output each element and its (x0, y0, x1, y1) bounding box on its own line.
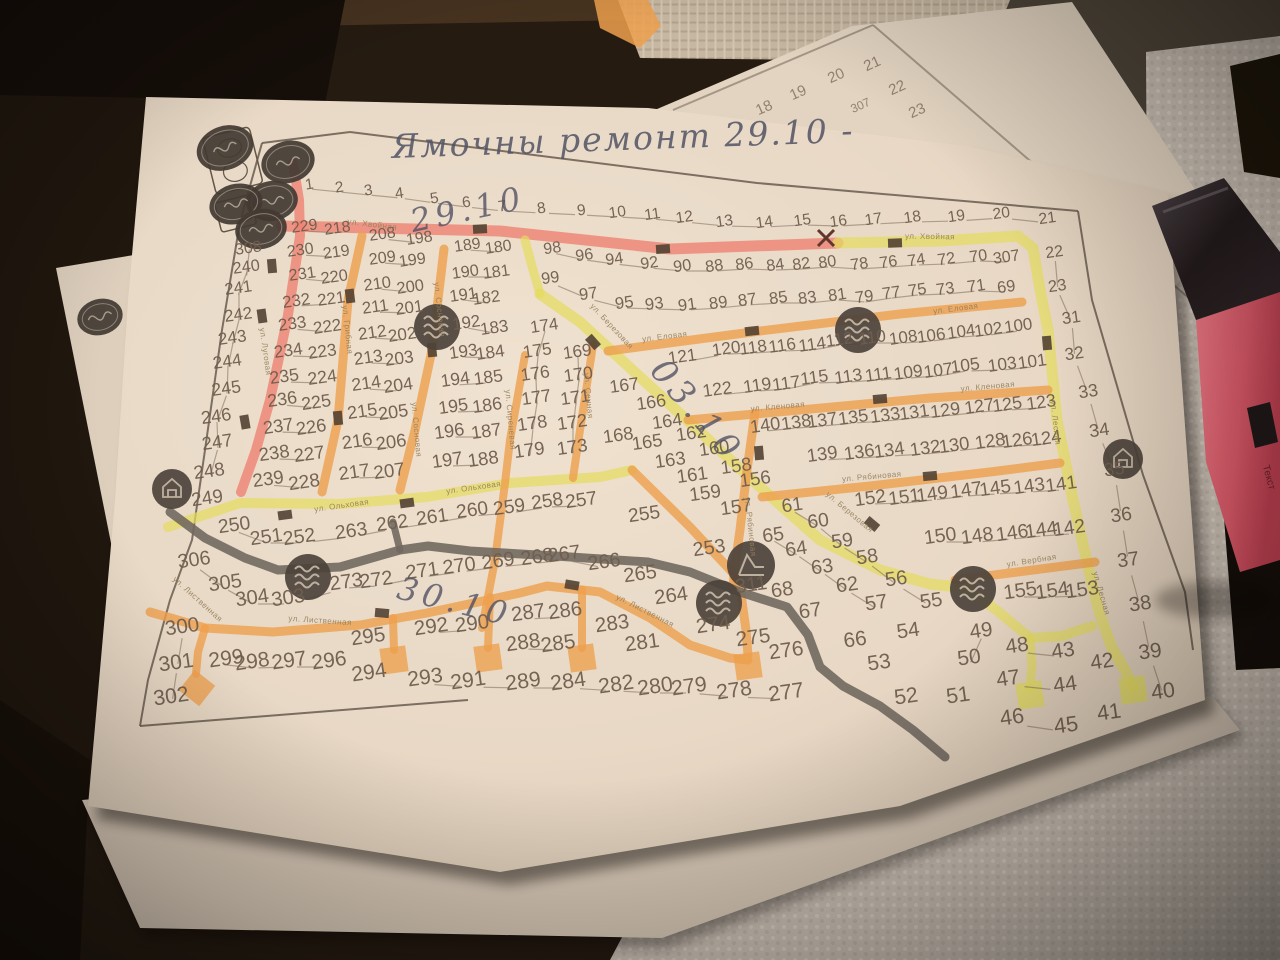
plot-number: 91 (677, 294, 698, 315)
plot-number: 279 (670, 672, 709, 701)
plot-number: 125 (991, 392, 1023, 416)
plot-number: 202 (387, 323, 418, 346)
plot-number: 237 (262, 414, 295, 438)
plot-number: 81 (827, 284, 848, 305)
plot-number: 252 (282, 524, 317, 550)
plot-number: 62 (835, 573, 860, 598)
plot-number: 287 (510, 600, 547, 627)
plot-number: 236 (266, 387, 298, 411)
plot-number: 105 (949, 353, 981, 377)
plot-number: 149 (915, 482, 949, 507)
plot-number: 184 (474, 340, 506, 364)
plot-number: 183 (479, 316, 510, 339)
plot-number: 197 (430, 447, 464, 472)
parcel-boundary-tick (732, 226, 758, 227)
plot-number: 228 (287, 470, 321, 495)
plot-number: 82 (791, 254, 811, 274)
plot-number: 289 (504, 667, 543, 696)
plot-number: 274 (694, 611, 731, 639)
plot-number: 115 (799, 365, 830, 389)
plot-number: 185 (472, 365, 504, 389)
plot-number: 95 (614, 292, 635, 313)
plot-number: 245 (210, 376, 242, 400)
plot-number: 277 (767, 678, 806, 707)
plot-number: 269 (480, 548, 516, 574)
plot-number: 84 (765, 255, 785, 275)
plot-number: 135 (837, 405, 870, 429)
plot-number: 11 (643, 205, 661, 224)
plot-number: 89 (708, 292, 729, 313)
plot-number: 83 (797, 287, 818, 308)
plot-number: 306 (176, 547, 212, 573)
plot-number: 173 (555, 434, 588, 459)
plot-number: 253 (691, 535, 727, 561)
plot-number: 152 (853, 486, 887, 511)
plot-number: 270 (441, 553, 477, 579)
plot-number: 275 (734, 624, 771, 652)
plot-number: 209 (368, 247, 397, 269)
repair-mark (1042, 336, 1052, 351)
plot-number: 243 (217, 326, 248, 349)
plot-number: 19 (947, 207, 967, 226)
plot-number: 242 (223, 303, 253, 326)
plot-number: 34 (1088, 419, 1111, 442)
plot-number: 203 (383, 346, 415, 370)
plot-number: 225 (300, 390, 332, 414)
plot-number: 88 (704, 256, 724, 276)
repair-mark (375, 608, 390, 618)
marker-shadow (1155, 582, 1275, 618)
plot-number: 15 (793, 211, 813, 230)
plot-number: 255 (627, 502, 662, 527)
plot-number: 175 (521, 338, 552, 362)
repair-mark (656, 244, 671, 254)
plot-number: 92 (639, 253, 659, 273)
plot-number: 106 (916, 324, 947, 347)
plot-number: 16 (829, 212, 849, 231)
plot-number: 226 (295, 415, 328, 439)
plot-number: 45 (1052, 711, 1079, 739)
street-highlight-orange (393, 618, 394, 650)
plot-number: 294 (350, 659, 388, 687)
house-icon-circle (152, 469, 192, 509)
plot-number: 188 (466, 446, 500, 471)
plot-number: 286 (547, 598, 584, 625)
plot-number: 99 (540, 268, 561, 288)
plot-number: 231 (288, 263, 317, 285)
plot-number: 301 (157, 649, 195, 677)
plot-number: 303 (270, 585, 306, 611)
plot-number: 238 (257, 440, 290, 465)
plot-number: 110 (857, 326, 887, 349)
plot-number: 205 (377, 400, 410, 424)
plot-number: 230 (286, 239, 315, 261)
street-label: ул. Хвойная (905, 232, 955, 242)
plot-number: 258 (530, 489, 564, 514)
plot-number: 52 (893, 683, 920, 710)
plot-number: 187 (470, 419, 503, 443)
plot-number: 265 (622, 561, 658, 587)
plot-number: 257 (564, 488, 598, 513)
plot-number: 90 (672, 256, 692, 276)
plot-number: 80 (817, 252, 837, 272)
plot-number: 54 (895, 618, 921, 644)
plot-number: 214 (350, 371, 382, 395)
plot-number: 31 (1061, 307, 1082, 328)
repair-mark (345, 289, 356, 304)
plot-number: 232 (281, 289, 311, 312)
plot-number: 216 (340, 428, 373, 453)
plot-number: 65 (761, 523, 786, 548)
plot-number: 13 (715, 212, 735, 231)
plot-number: 86 (734, 254, 754, 274)
plot-number: 276 (767, 637, 805, 665)
plot-number: 248 (192, 458, 226, 483)
plot-number: 132 (908, 435, 941, 460)
plot-number: 73 (935, 279, 956, 299)
plot-number: 61 (780, 494, 804, 518)
plot-number: 182 (471, 286, 501, 309)
plot-number: 101 (1016, 349, 1048, 373)
plot-number: 50 (956, 645, 982, 671)
plot-number: 67 (797, 599, 823, 624)
repair-mark (745, 326, 760, 336)
plot-number: 69 (996, 277, 1017, 297)
plot-number: 66 (842, 627, 868, 653)
plot-number: 35 (1102, 457, 1126, 481)
plot-number: 22 (1044, 242, 1064, 262)
plot-number: 100 (1003, 314, 1034, 337)
plot-number: 285 (539, 630, 577, 658)
plot-number: 150 (923, 523, 958, 549)
plot-number: 39 (1137, 639, 1163, 665)
plot-number: 223 (306, 339, 337, 363)
plot-number: 196 (433, 419, 466, 443)
plot-number: 133 (869, 403, 902, 427)
plot-number: 53 (866, 650, 892, 676)
plot-number: 211 (361, 295, 390, 318)
plot-number: 111 (864, 362, 893, 386)
plot-number: 272 (358, 567, 394, 593)
plot-number: 200 (395, 276, 425, 298)
plot-number: 112 (824, 328, 854, 351)
plot-number: 72 (936, 249, 956, 269)
plot-number: 264 (653, 583, 689, 609)
plot-number: 261 (415, 505, 450, 530)
plot-number: 169 (561, 339, 592, 363)
plot-number: 87 (737, 289, 758, 310)
plot-number: 63 (810, 555, 835, 580)
plot-number: 298 (233, 648, 271, 676)
plot-number: 278 (715, 676, 754, 705)
plot-number: 141 (1044, 472, 1078, 497)
plot-number: 181 (482, 261, 511, 283)
plot-number: 194 (439, 367, 471, 391)
repair-mark (888, 238, 902, 247)
plot-number: 68 (770, 578, 795, 603)
plot-number: 284 (549, 667, 588, 696)
plot-number: 295 (349, 623, 386, 651)
plot-number: 78 (849, 254, 869, 274)
plot-number: 93 (644, 293, 665, 314)
plot-number: 40 (1150, 678, 1177, 705)
plot-number: 148 (960, 523, 995, 549)
plot-number: 33 (1077, 380, 1099, 403)
plot-number: 212 (357, 321, 388, 344)
plot-number: 131 (898, 400, 931, 424)
plot-number: 207 (372, 458, 406, 483)
plot-number: 249 (190, 486, 224, 511)
plot-number: 267 (546, 541, 582, 567)
plot-number: 119 (742, 373, 773, 397)
water-icon-circle (950, 566, 996, 612)
plot-number: 136 (842, 439, 875, 464)
plot-number: 118 (738, 335, 768, 359)
plot-number: 44 (1052, 671, 1079, 698)
plot-number: 234 (272, 338, 304, 362)
parcel-boundary-tick (922, 221, 948, 222)
plot-number: 137 (806, 408, 839, 432)
plot-number: 262 (375, 511, 410, 536)
plot-number: 244 (211, 349, 243, 373)
plot-number: 32 (1063, 342, 1085, 364)
plot-number: 178 (516, 411, 549, 435)
plot-number: 139 (805, 441, 838, 466)
plot-number: 190 (451, 261, 480, 283)
plot-number: 300 (163, 613, 200, 641)
plot-number: 20 (992, 204, 1012, 223)
photo-scene: 1819202122233071234567891011121314151617… (0, 0, 1280, 960)
plot-number: 55 (918, 589, 943, 614)
house-icon (152, 469, 192, 509)
plot-number: 195 (437, 394, 469, 418)
plot-number: 64 (784, 537, 809, 562)
plot-number: 293 (406, 664, 444, 692)
plot-number: 143 (1012, 474, 1046, 499)
plot-number: 43 (1050, 638, 1076, 664)
plot-number: 85 (768, 287, 789, 308)
plot-number: 102 (973, 318, 1004, 341)
plot-number: 176 (519, 361, 551, 385)
plot-number: 210 (362, 273, 392, 295)
plot-number: 10 (608, 203, 628, 222)
plot-number: 204 (382, 373, 414, 397)
plot-number: 12 (675, 208, 695, 227)
plot-number: 60 (806, 510, 830, 534)
plot-number: 145 (978, 476, 1012, 501)
plot-number: 71 (966, 276, 987, 296)
plot-number: 302 (152, 682, 191, 711)
plot-number: 76 (878, 252, 898, 272)
plot-number: 18 (903, 208, 923, 227)
repair-mark (923, 471, 938, 481)
plot-number: 296 (310, 647, 348, 675)
plot-number: 192 (451, 311, 482, 334)
plot-number: 247 (200, 429, 233, 454)
plot-number: 70 (968, 246, 988, 266)
plot-number: 51 (945, 682, 972, 709)
plot-number: 186 (471, 393, 503, 417)
plot-number: 94 (604, 249, 624, 269)
plot-number: 75 (907, 280, 928, 300)
plot-number: 109 (892, 360, 924, 384)
plot-number: 288 (504, 629, 542, 657)
plot-number: 57 (863, 591, 888, 616)
plot-number: 246 (200, 404, 233, 428)
plot-number: 304 (234, 585, 270, 611)
plot-number: 177 (520, 385, 552, 409)
plot-number: 227 (292, 441, 325, 466)
plot-number: 74 (906, 250, 926, 270)
plot-number: 224 (306, 365, 338, 389)
water-icon (950, 566, 996, 612)
plot-number: 282 (597, 670, 636, 699)
plot-number: 47 (995, 666, 1022, 692)
plot-number: 56 (884, 567, 909, 592)
plot-number: 130 (937, 432, 970, 457)
plot-number: 241 (223, 277, 253, 299)
plot-number: 240 (232, 256, 261, 278)
plot-number: 291 (449, 667, 487, 695)
plot-number: 114 (797, 332, 827, 356)
plot-number: 297 (270, 647, 308, 675)
plot-number: 17 (864, 210, 884, 229)
plot-number: 263 (334, 518, 369, 544)
plot-number: 117 (771, 371, 802, 395)
plot-number: 199 (398, 249, 427, 271)
plot-number: 140 (749, 413, 782, 437)
plot-number: 108 (888, 326, 919, 349)
plot-number: 98 (542, 239, 562, 258)
plot-number: 201 (394, 296, 424, 319)
plot-number: 220 (320, 266, 350, 288)
plot-number: 259 (492, 495, 527, 520)
plot-number: 206 (374, 429, 407, 454)
street-highlight-yellow (1030, 638, 1032, 688)
repair-mark (873, 394, 888, 404)
plot-number: 129 (929, 398, 962, 422)
plot-number: 215 (346, 399, 379, 423)
plot-number: 120 (711, 336, 742, 360)
plot-number: 58 (855, 545, 880, 570)
plot-number: 222 (312, 315, 343, 338)
plot-number: 174 (529, 314, 560, 337)
plot-number: 213 (352, 345, 384, 369)
plot-number: 116 (767, 333, 797, 357)
plot-number: 193 (447, 339, 478, 363)
plot-number: 266 (586, 549, 622, 575)
plot-number: 37 (1116, 548, 1141, 573)
plot-number: 281 (623, 629, 661, 657)
plot-number: 142 (1052, 515, 1087, 541)
plot-number: 104 (946, 320, 977, 343)
plot-number: 311 (734, 572, 769, 598)
plot-number: 307 (992, 246, 1021, 268)
repair-mark (267, 259, 277, 274)
plot-number: 159 (688, 481, 722, 506)
plot-number: 77 (881, 282, 902, 303)
repair-mark (333, 411, 343, 426)
plot-number: 260 (455, 498, 490, 523)
plot-number: 280 (636, 672, 675, 701)
plot-number: 219 (322, 241, 351, 263)
map-photo-svg: 1819202122233071234567891011121314151617… (0, 0, 1280, 960)
plot-number: 217 (337, 459, 371, 484)
plot-number: 21 (1038, 209, 1058, 228)
plot-number: 96 (574, 245, 594, 265)
plot-number: 250 (217, 512, 252, 538)
plot-number: 48 (1004, 633, 1030, 659)
plot-number: 38 (1127, 592, 1152, 617)
plot-number: 233 (277, 312, 308, 335)
plot-number: 46 (998, 703, 1025, 731)
plot-number: 49 (968, 618, 994, 644)
plot-number: 14 (755, 213, 775, 232)
plot-number: 42 (1089, 649, 1115, 675)
repair-mark (754, 446, 764, 461)
street-culdesac-bulb (1118, 675, 1147, 704)
plot-number: 251 (249, 524, 284, 550)
plot-number: 239 (251, 466, 285, 491)
plot-number: 172 (556, 410, 589, 434)
plot-number: 103 (986, 352, 1018, 376)
plot-number: 36 (1109, 504, 1133, 528)
plot-number: 59 (830, 529, 855, 554)
plot-number: 41 (1095, 698, 1122, 726)
plot-number: 156 (738, 466, 772, 491)
plot-number: 79 (854, 286, 875, 307)
plot-number: 113 (833, 364, 864, 388)
plot-number: 134 (872, 437, 905, 462)
plot-number: 23 (1047, 276, 1068, 296)
